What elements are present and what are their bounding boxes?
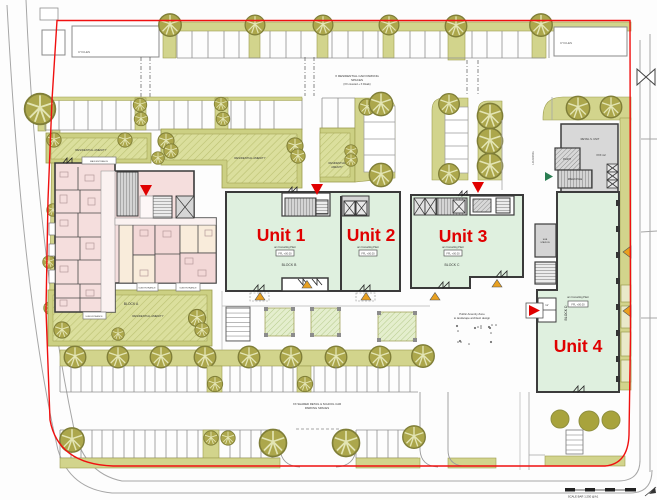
svg-text:AMENITY: AMENITY — [331, 165, 343, 169]
svg-text:FFL +00.00: FFL +00.00 — [571, 303, 585, 307]
svg-text:FFL +00.00: FFL +00.00 — [278, 252, 292, 256]
svg-text:SUB ENTRANCE: SUB ENTRANCE — [138, 287, 156, 290]
svg-text:RESIDENTIAL AMENITY: RESIDENTIAL AMENITY — [75, 148, 106, 152]
svg-text:SUB ENTRANCE: SUB ENTRANCE — [85, 315, 103, 318]
svg-text:RESIDENTIAL AMENITY: RESIDENTIAL AMENITY — [132, 314, 163, 318]
svg-text:Unit 4: Unit 4 — [554, 336, 603, 356]
svg-text:BLOCK B: BLOCK B — [282, 263, 297, 267]
svg-text:Unit 1: Unit 1 — [257, 225, 306, 245]
svg-text:FFL +00.00: FFL +00.00 — [361, 252, 375, 256]
svg-text:STATION: STATION — [540, 241, 550, 244]
svg-text:PARKING SPACES: PARKING SPACES — [305, 406, 329, 410]
svg-text:SCALE BAR 1:250 @A1: SCALE BAR 1:250 @A1 — [568, 495, 599, 499]
svg-text:BLOCK D: BLOCK D — [564, 305, 568, 320]
svg-text:SPACES: SPACES — [351, 78, 363, 82]
svg-text:SUB: SUB — [543, 239, 548, 241]
svg-text:CYCLES: CYCLES — [78, 50, 90, 54]
svg-text:am Consulting Plant: am Consulting Plant — [357, 246, 379, 249]
svg-text:BLOCK A: BLOCK A — [124, 302, 139, 306]
svg-text:SUB ENTRANCE: SUB ENTRANCE — [179, 287, 197, 290]
svg-text:Unit 2: Unit 2 — [347, 225, 396, 245]
svg-text:am Consulting Plant: am Consulting Plant — [567, 296, 589, 299]
svg-text:am Consulting Plant: am Consulting Plant — [442, 246, 464, 249]
svg-text:CYCLES: CYCLES — [560, 41, 572, 45]
svg-text:LV: LV — [546, 304, 549, 307]
svg-text:RETAIL S. UNIT: RETAIL S. UNIT — [581, 137, 600, 141]
svg-text:RESIDENTIAL: RESIDENTIAL — [328, 161, 346, 165]
svg-text:to landscape architect design: to landscape architect design — [454, 316, 491, 320]
svg-text:Unit 3: Unit 3 — [439, 226, 488, 246]
svg-text:LOADING: LOADING — [531, 151, 535, 165]
svg-text:am Consulting Plant: am Consulting Plant — [274, 246, 296, 249]
svg-text:XXX m2: XXX m2 — [596, 153, 606, 157]
svg-text:(XX covered + X Disab): (XX covered + X Disab) — [343, 82, 370, 86]
svg-text:BLOCK C: BLOCK C — [445, 263, 460, 267]
svg-text:FFL +00.00: FFL +00.00 — [446, 252, 460, 256]
svg-text:RESIDENTIAL AMENITY: RESIDENTIAL AMENITY — [234, 156, 265, 160]
svg-text:MAIL/CYCLE: MAIL/CYCLE — [568, 178, 583, 181]
svg-text:MAIN ENTRANCE: MAIN ENTRANCE — [90, 160, 109, 163]
svg-text:PLANT: PLANT — [563, 158, 571, 161]
